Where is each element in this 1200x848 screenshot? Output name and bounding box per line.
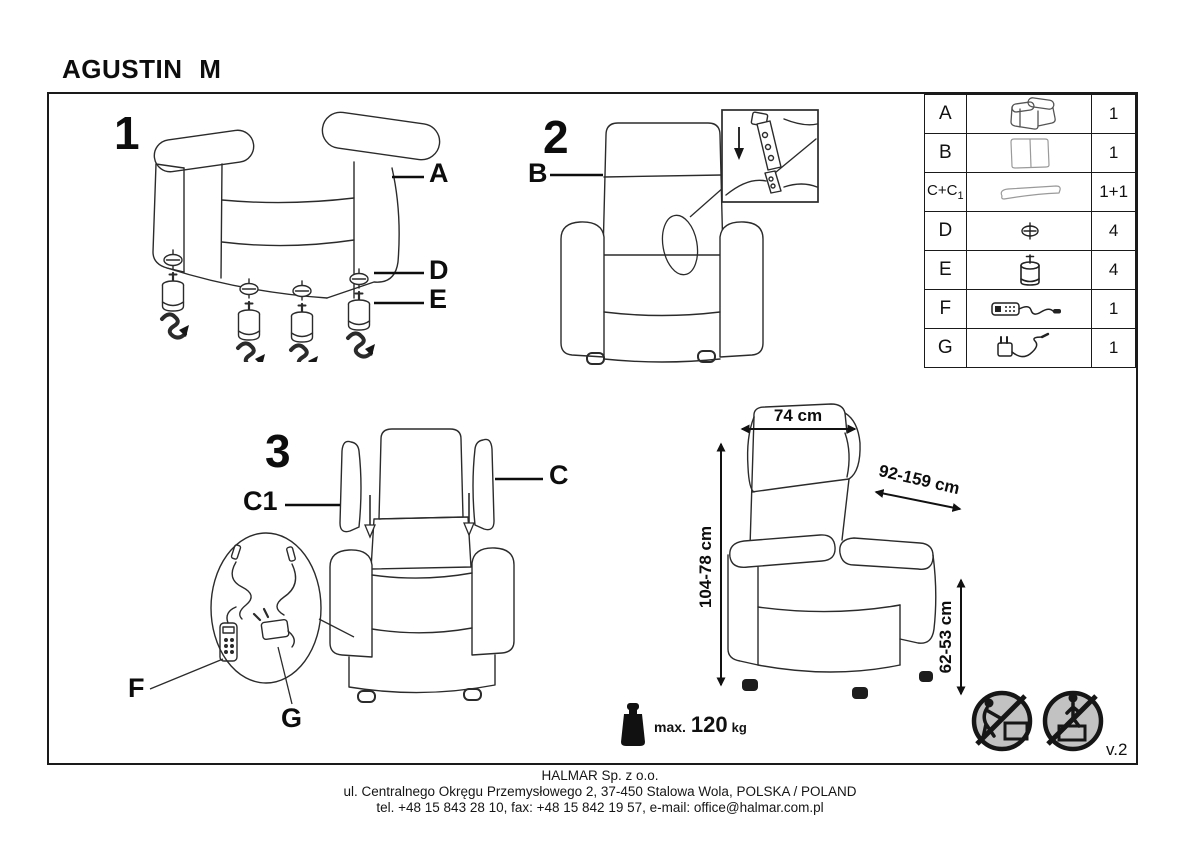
armchair-body-icon — [974, 96, 1084, 133]
leg-assemblies — [162, 250, 375, 362]
parts-row-g: G 1 — [925, 329, 1136, 368]
parts-row-a: A 1 — [925, 95, 1136, 134]
cables-detail-bubble — [211, 533, 321, 683]
instruction-sheet: AGUSTIN M 1 — [0, 0, 1200, 848]
dimensions-diagram: 74 cm 104-78 cm 92-159 cm 62-53 cm — [692, 397, 982, 707]
power-adapter-icon — [974, 330, 1084, 367]
no-leaning-icon — [974, 693, 1030, 749]
seat-height-dimension: 62-53 cm — [936, 601, 955, 674]
callout-label-d: D — [429, 257, 449, 284]
detail-callout-line — [690, 187, 724, 217]
armchair-wings-drawing — [330, 429, 514, 702]
parts-row-b: B 1 — [925, 134, 1136, 173]
backrest-icon — [974, 135, 1084, 172]
adapter-in-bubble-icon — [261, 619, 289, 639]
remote-control-icon — [974, 291, 1084, 328]
parts-table: A 1 B — [924, 94, 1136, 368]
weight-max-label: max. — [654, 719, 686, 735]
height-dimension: 104-78 cm — [696, 526, 715, 608]
depth-dimension: 92-159 cm — [877, 461, 961, 498]
parts-row-c: C+C1 1+1 — [925, 173, 1136, 212]
footer-address: ul. Centralnego Okręgu Przemysłowego 2, … — [0, 784, 1200, 800]
weight-icon — [618, 702, 648, 748]
diagram-board: 1 — [47, 92, 1138, 765]
callout-label-a: A — [429, 160, 449, 187]
no-standing-icon — [1045, 693, 1101, 749]
parts-row-f: F 1 — [925, 290, 1136, 329]
product-title: AGUSTIN M — [62, 54, 221, 85]
weight-value: 120 — [691, 712, 728, 738]
footer-company: HALMAR Sp. z o.o. — [0, 768, 1200, 784]
weight-limit: max. 120 kg — [618, 702, 747, 748]
detail-callout-ellipse — [658, 213, 702, 278]
wing-cushion-icon — [974, 174, 1084, 211]
armchair-base-drawing — [152, 110, 442, 298]
parts-row-e: E 4 — [925, 251, 1136, 290]
recliner-drawing — [728, 404, 936, 699]
step-3-diagram — [102, 407, 602, 747]
parts-row-d: D 4 — [925, 212, 1136, 251]
callout-line-f — [150, 659, 223, 689]
leg-icon — [974, 252, 1084, 289]
callout-label-e: E — [429, 286, 447, 313]
footer: HALMAR Sp. z o.o. ul. Centralnego Okręgu… — [0, 768, 1200, 816]
step-1-diagram — [62, 102, 472, 362]
step-2-diagram — [502, 97, 842, 387]
width-dimension: 74 cm — [774, 406, 822, 425]
wing-insert-arrows — [365, 493, 474, 537]
screw-icon — [974, 213, 1084, 250]
weight-unit: kg — [732, 720, 747, 735]
safety-icons — [963, 686, 1113, 756]
footer-contact: tel. +48 15 843 28 10, fax: +48 15 842 1… — [0, 800, 1200, 816]
version-label: v.2 — [1106, 740, 1127, 760]
bracket-detail-inset — [722, 110, 818, 202]
